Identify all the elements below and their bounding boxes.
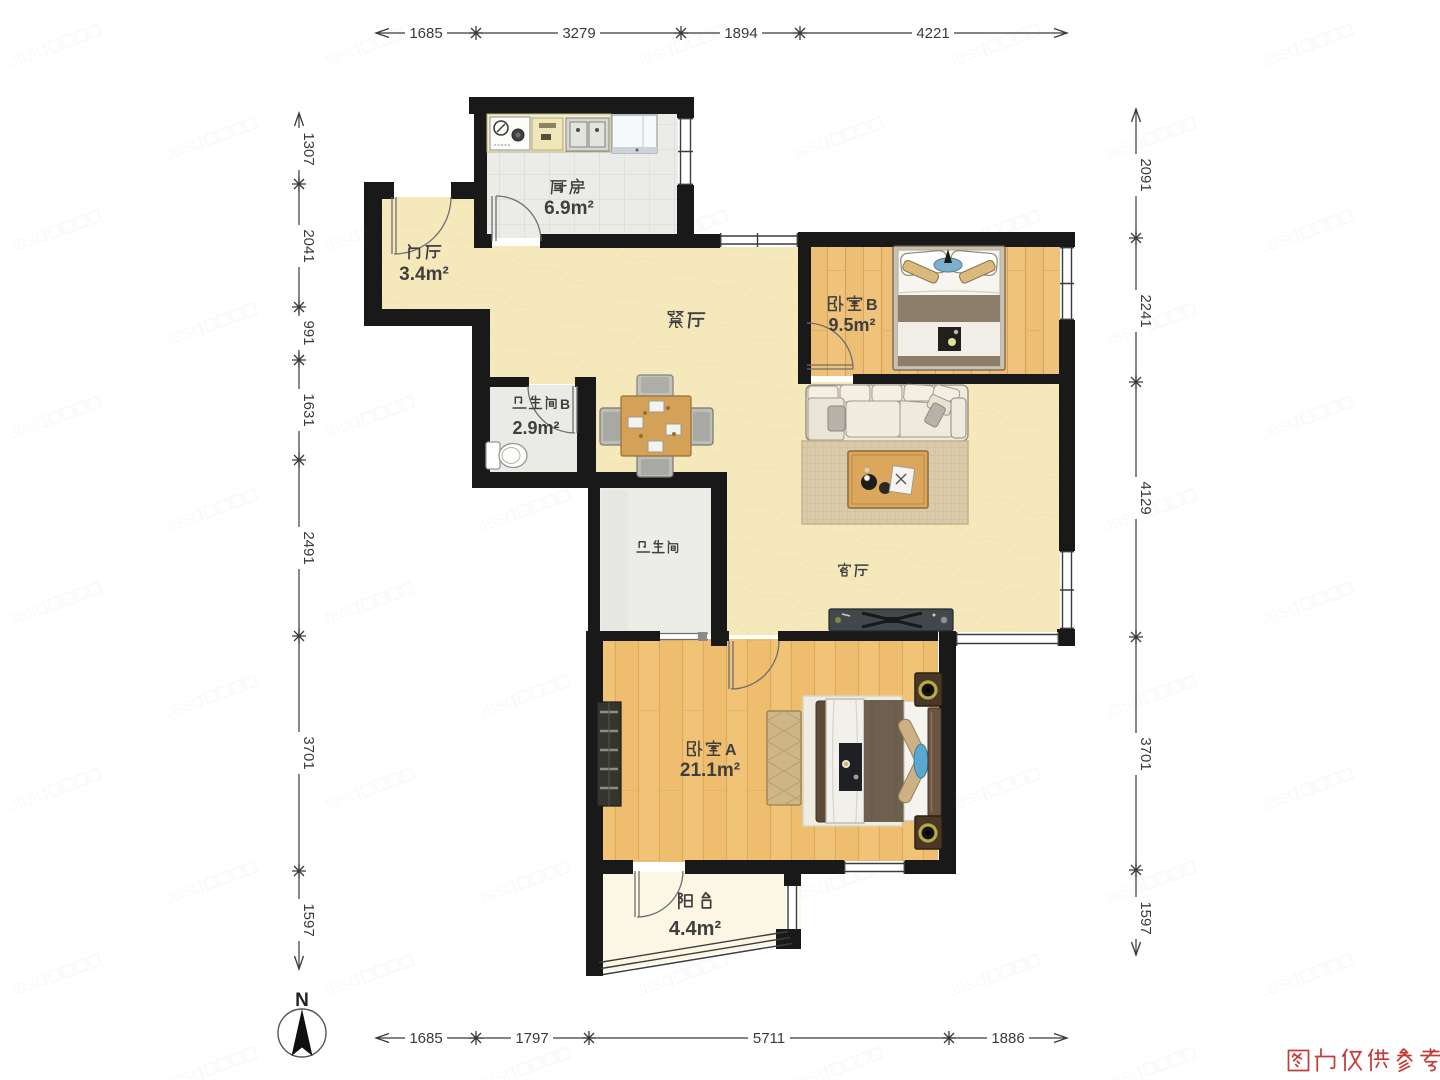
svg-text:1685: 1685 [409, 25, 442, 42]
svg-text:2241: 2241 [1137, 294, 1154, 327]
svg-text:2041: 2041 [300, 229, 317, 262]
svg-text:3279: 3279 [562, 25, 595, 42]
svg-text:1685: 1685 [409, 1030, 442, 1047]
svg-text:1797: 1797 [515, 1030, 548, 1047]
svg-text:2091: 2091 [1137, 158, 1154, 191]
svg-text:991: 991 [300, 320, 317, 345]
svg-text:2.9m²: 2.9m² [512, 418, 559, 438]
svg-text:B: B [560, 396, 570, 412]
svg-text:2491: 2491 [300, 531, 317, 564]
svg-text:3701: 3701 [300, 736, 317, 769]
svg-text:1894: 1894 [724, 25, 757, 42]
svg-text:B: B [866, 297, 878, 314]
svg-text:N: N [295, 990, 309, 1011]
svg-text:A: A [725, 742, 737, 759]
svg-text:1307: 1307 [300, 132, 317, 165]
svg-text:1597: 1597 [1137, 901, 1154, 934]
svg-text:1886: 1886 [991, 1030, 1024, 1047]
svg-text:6.9m²: 6.9m² [544, 198, 594, 219]
svg-text:4221: 4221 [916, 25, 949, 42]
svg-text:4.4m²: 4.4m² [669, 918, 722, 940]
svg-text:1631: 1631 [300, 393, 317, 426]
svg-text:4129: 4129 [1137, 481, 1154, 514]
svg-text:9.5m²: 9.5m² [828, 315, 875, 335]
svg-text:3701: 3701 [1137, 737, 1154, 770]
svg-text:5711: 5711 [753, 1030, 785, 1047]
svg-text:3.4m²: 3.4m² [399, 264, 449, 285]
svg-text:1597: 1597 [300, 903, 317, 936]
svg-text:21.1m²: 21.1m² [680, 760, 740, 781]
